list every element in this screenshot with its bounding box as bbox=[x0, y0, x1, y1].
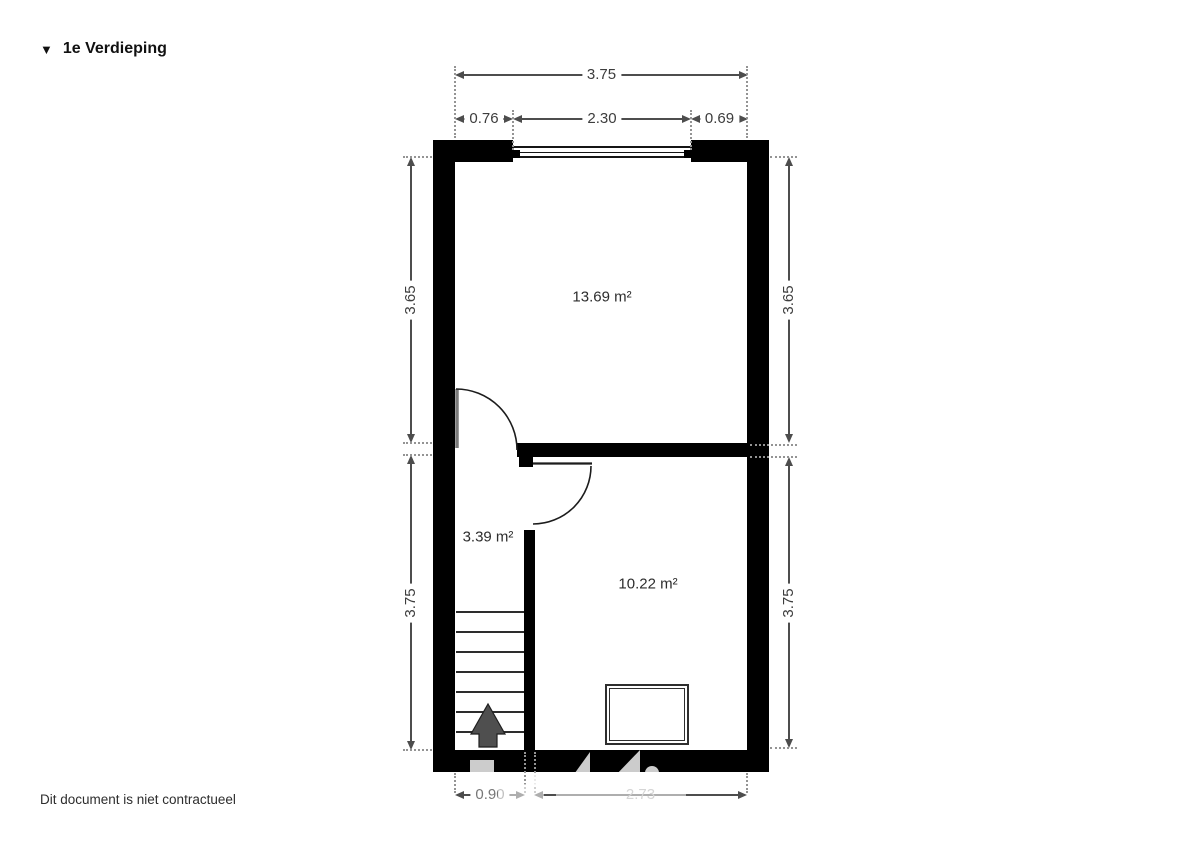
window bbox=[513, 140, 691, 162]
room-area-label: 13.69 m² bbox=[572, 289, 631, 306]
dimension-label: 3.65 bbox=[402, 280, 420, 319]
extension-line bbox=[403, 749, 432, 751]
door-jamb-stub bbox=[519, 457, 533, 467]
interior-wall-vertical bbox=[524, 530, 535, 750]
extension-line bbox=[454, 66, 456, 138]
extension-line bbox=[512, 110, 514, 150]
window-glazing-line bbox=[517, 152, 687, 154]
disclaimer-text: Dit document is niet contractueel bbox=[40, 792, 236, 807]
dimension-label: 0.69 bbox=[700, 110, 739, 128]
floor-section-header[interactable]: ▼ 1e Verdieping bbox=[40, 40, 167, 58]
floorplan-page: ▼ 1e Verdieping 13.6 bbox=[0, 0, 1200, 848]
extension-line bbox=[403, 156, 432, 158]
window-jamb bbox=[513, 150, 520, 158]
watermark bbox=[470, 760, 494, 774]
extension-line bbox=[746, 66, 748, 138]
window-frame-line bbox=[513, 146, 691, 148]
room-area-label: 3.39 m² bbox=[463, 529, 514, 546]
dimension-label: 3.75 bbox=[582, 66, 621, 84]
room-area-label: 10.22 m² bbox=[618, 576, 677, 593]
collapse-triangle-icon[interactable]: ▼ bbox=[40, 43, 53, 56]
dimension-label: 0.76 bbox=[464, 110, 503, 128]
window-jamb bbox=[684, 150, 691, 158]
watermark bbox=[645, 766, 659, 780]
interior-wall-horizontal bbox=[517, 443, 747, 457]
extension-line bbox=[403, 454, 432, 456]
extension-line bbox=[746, 773, 748, 793]
watermark bbox=[498, 784, 544, 804]
extension-line bbox=[403, 442, 432, 444]
floor-title: 1e Verdieping bbox=[63, 40, 167, 58]
dimension-label: 3.65 bbox=[780, 280, 798, 319]
extension-line bbox=[770, 747, 797, 749]
dimension-label: 3.75 bbox=[402, 583, 420, 622]
extension-line bbox=[750, 456, 797, 458]
extension-line bbox=[454, 773, 456, 793]
extension-line bbox=[750, 444, 797, 446]
extension-line bbox=[690, 110, 692, 150]
roof-window bbox=[605, 684, 689, 745]
dimension-label: 3.75 bbox=[780, 583, 798, 622]
roof-window-inner-frame bbox=[609, 688, 685, 741]
dimension-label: 2.30 bbox=[582, 110, 621, 128]
window-glazing-line bbox=[517, 156, 687, 158]
watermark bbox=[556, 784, 686, 806]
extension-line bbox=[770, 156, 797, 158]
